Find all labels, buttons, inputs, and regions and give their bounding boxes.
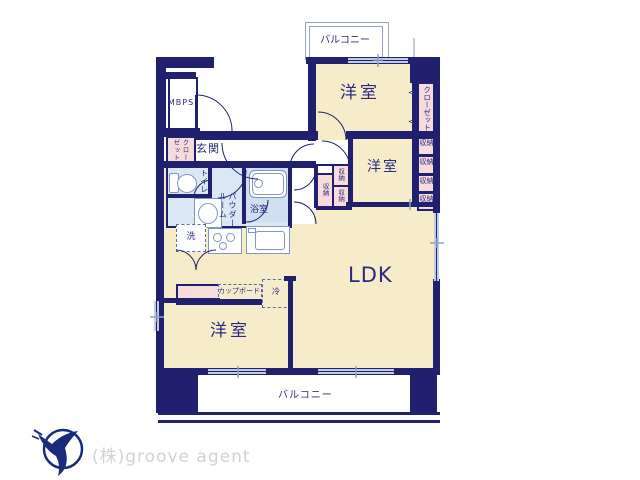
closet-door-arrow-icon: < bbox=[408, 89, 415, 98]
company-logo bbox=[28, 418, 92, 480]
bathroom-label: 浴室 bbox=[250, 206, 268, 216]
bedroom-2-label: 洋室 bbox=[367, 160, 399, 175]
closet-double-door-arc bbox=[196, 250, 216, 270]
bedroom1-door-arc bbox=[318, 112, 346, 140]
powder-room-label-col2: ルーム bbox=[218, 192, 227, 219]
closet-double-door-arc bbox=[176, 250, 196, 270]
powder-room-label: パウダールーム bbox=[219, 192, 237, 234]
ldk-label: LDK bbox=[348, 264, 393, 287]
entrance-label: 玄関 bbox=[196, 143, 220, 155]
bedroom-1-label: 洋室 bbox=[340, 84, 380, 103]
floor-plan: バルコニー 洗 クローゼット 収納 収納 収納 収納 収納 収納 収納 クロー bbox=[0, 0, 640, 480]
closet-door-arrow-icon: < bbox=[408, 118, 415, 127]
bedroom-3-label: 洋室 bbox=[210, 322, 250, 341]
balcony-bottom-label: バルコニー bbox=[278, 390, 333, 401]
front-door-arc bbox=[196, 95, 232, 131]
company-name: (株)groove agent bbox=[92, 442, 251, 467]
logo-accent-line bbox=[32, 436, 39, 439]
ldk-door-arc bbox=[290, 144, 314, 168]
hall-door-arc bbox=[222, 143, 258, 179]
bedroom2-door-arc bbox=[322, 141, 350, 169]
logo-accent-line bbox=[34, 430, 42, 435]
toilet-label: トイレ bbox=[199, 169, 208, 199]
corridor-double-door-arc bbox=[294, 202, 316, 224]
door-swing-layer bbox=[0, 0, 640, 480]
dimension-ticks bbox=[150, 54, 444, 378]
corridor-double-door-arc bbox=[294, 168, 316, 190]
powder-room-label-col1: パウダー bbox=[228, 192, 237, 228]
